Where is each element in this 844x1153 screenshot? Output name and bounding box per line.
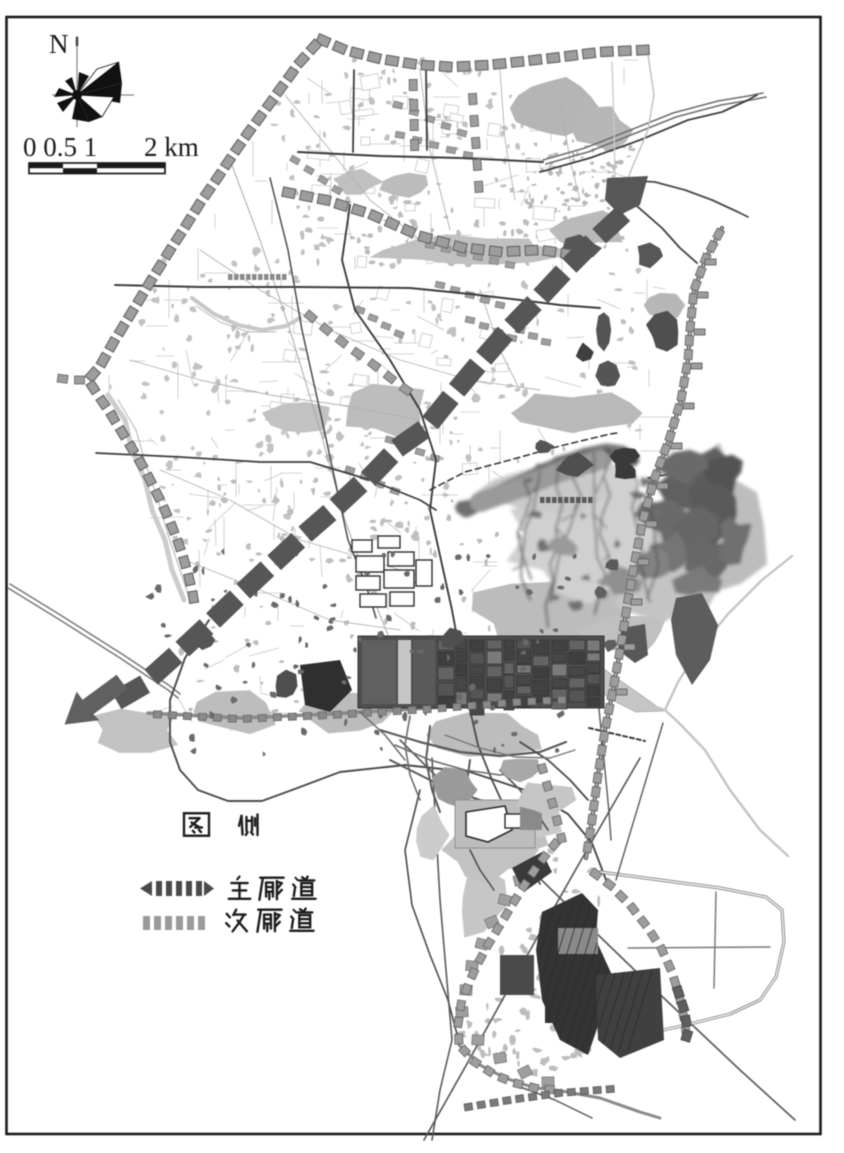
svg-text:0 0.5 1: 0 0.5 1: [23, 132, 97, 162]
svg-text:2 km: 2 km: [144, 132, 199, 162]
svg-text:N: N: [49, 29, 69, 59]
